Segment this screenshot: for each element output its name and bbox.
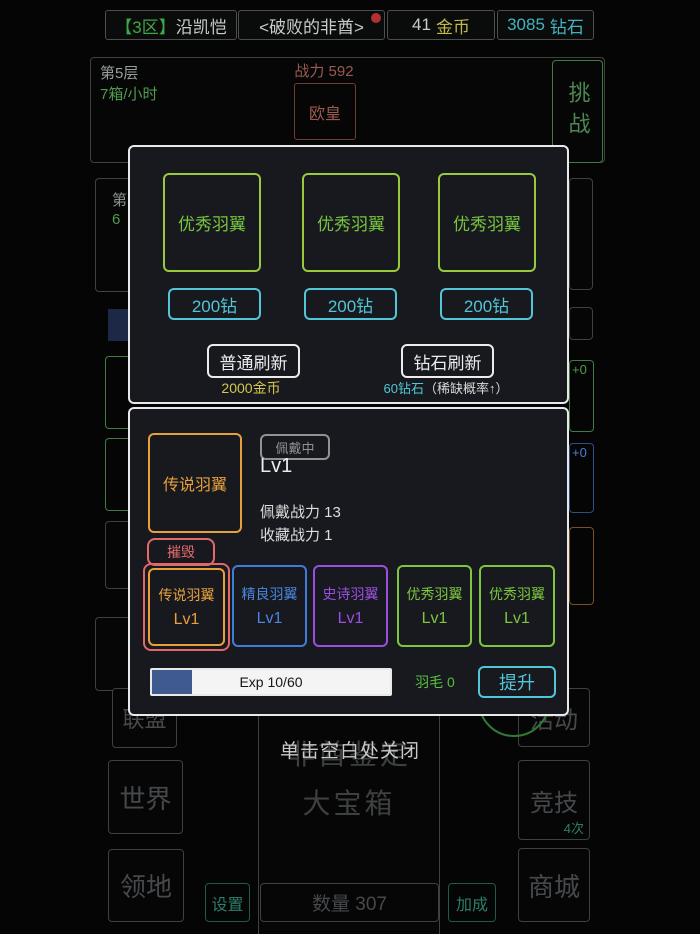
destroy-button[interactable]: 摧毁 bbox=[147, 538, 215, 566]
guild-title-button[interactable]: <破败的非酋> bbox=[238, 10, 385, 40]
slot-blue-plus-label: +0 bbox=[572, 445, 587, 460]
challenge-label: 挑战 bbox=[562, 81, 594, 143]
game-screen: 【3区】 沿凯恺 <破败的非酋> 41 金币 3085 钻石 第5层 7箱/小时… bbox=[0, 0, 700, 934]
shop-item-name: 优秀羽翼 bbox=[453, 210, 521, 235]
inventory-wing-card[interactable]: 优秀羽翼 Lv1 bbox=[479, 565, 555, 647]
menu-shop-button[interactable]: 商城 bbox=[518, 848, 590, 922]
settings-button[interactable]: 设置 bbox=[205, 883, 250, 922]
equipped-badge-label: 佩戴中 bbox=[275, 438, 314, 457]
diamond-unit-label: 钻石 bbox=[550, 13, 584, 38]
right-slot-orange bbox=[569, 527, 594, 605]
exp-label: Exp 10/60 bbox=[152, 670, 390, 694]
server-zone-label: 【3区】 bbox=[115, 13, 175, 38]
wing-level: Lv1 bbox=[338, 610, 364, 628]
inventory-wing-card[interactable]: 传说羽翼 Lv1 bbox=[148, 568, 225, 646]
gold-counter: 41 金币 bbox=[387, 10, 495, 40]
normal-refresh-button[interactable]: 普通刷新 bbox=[207, 344, 300, 378]
upgrade-label: 提升 bbox=[499, 669, 535, 695]
slot-green-plus-label: +0 bbox=[572, 362, 587, 377]
price-label: 200钻 bbox=[464, 292, 509, 317]
shop-item-card[interactable]: 优秀羽翼 bbox=[438, 173, 536, 272]
gold-unit-label: 金币 bbox=[436, 13, 470, 38]
diamond-refresh-label: 钻石刷新 bbox=[414, 349, 482, 374]
chest-rate-label: 7箱/小时 bbox=[100, 83, 158, 104]
buy-button[interactable]: 200钻 bbox=[304, 288, 397, 320]
bonus-label: 加成 bbox=[456, 891, 488, 915]
normal-refresh-cost-label: 2000金币 bbox=[163, 378, 339, 398]
arena-count-badge: 4次 bbox=[548, 818, 584, 837]
selected-wing-card[interactable]: 传说羽翼 bbox=[148, 433, 242, 533]
collection-power-label: 收藏战力 1 bbox=[260, 524, 333, 545]
settings-label: 设置 bbox=[211, 891, 243, 915]
wing-name: 传说羽翼 bbox=[159, 585, 215, 605]
wear-power-label: 佩戴战力 13 bbox=[260, 501, 341, 522]
feather-count-label: 羽毛 0 bbox=[400, 672, 470, 692]
world-label: 世界 bbox=[119, 779, 171, 816]
enemy-card[interactable]: 欧皇 bbox=[294, 83, 356, 140]
bonus-button[interactable]: 加成 bbox=[448, 883, 496, 922]
right-slot-gray-1 bbox=[569, 178, 593, 290]
buy-button[interactable]: 200钻 bbox=[168, 288, 261, 320]
wing-level: Lv1 bbox=[422, 610, 448, 628]
wing-name: 史诗羽翼 bbox=[323, 584, 379, 604]
diamond-value: 3085 bbox=[507, 15, 545, 35]
wing-name: 优秀羽翼 bbox=[407, 584, 463, 604]
inventory-wing-card[interactable]: 优秀羽翼 Lv1 bbox=[397, 565, 472, 647]
menu-world-button[interactable]: 世界 bbox=[108, 760, 183, 834]
wing-name: 精良羽翼 bbox=[242, 584, 298, 604]
wing-level: Lv1 bbox=[257, 610, 283, 628]
shop-label: 商城 bbox=[528, 867, 580, 904]
normal-refresh-label: 普通刷新 bbox=[220, 349, 288, 374]
menu-territory-button[interactable]: 领地 bbox=[108, 849, 184, 922]
diamond-refresh-cost-note: （稀缺概率↑） bbox=[424, 378, 509, 397]
price-label: 200钻 bbox=[328, 292, 373, 317]
gold-value: 41 bbox=[412, 15, 431, 35]
wing-level-label: Lv1 bbox=[260, 455, 292, 478]
inventory-wing-card[interactable]: 史诗羽翼 Lv1 bbox=[313, 565, 388, 647]
diamond-refresh-button[interactable]: 钻石刷新 bbox=[401, 344, 494, 378]
chest-subtitle-label: 大宝箱 bbox=[302, 782, 395, 822]
floor-label: 第5层 bbox=[100, 62, 138, 83]
price-label: 200钻 bbox=[192, 292, 237, 317]
arena-label: 竞技 bbox=[530, 783, 578, 818]
shop-item-card[interactable]: 优秀羽翼 bbox=[302, 173, 400, 272]
wing-name: 优秀羽翼 bbox=[489, 584, 545, 604]
floor2-number-label: 6 bbox=[112, 211, 120, 228]
chest-count-bar: 数量 307 bbox=[260, 883, 439, 922]
diamond-counter: 3085 钻石 bbox=[497, 10, 594, 40]
close-hint-label: 单击空白处关闭 bbox=[248, 736, 452, 763]
destroy-label: 摧毁 bbox=[167, 542, 195, 562]
notification-dot-icon bbox=[371, 13, 381, 23]
player-name-label: 沿凯恺 bbox=[176, 13, 227, 38]
enemy-name-label: 欧皇 bbox=[309, 100, 341, 124]
diamond-refresh-cost: 60钻石 （稀缺概率↑） bbox=[341, 378, 551, 397]
buy-button[interactable]: 200钻 bbox=[440, 288, 533, 320]
inventory-wing-card[interactable]: 精良羽翼 Lv1 bbox=[232, 565, 307, 647]
guild-title-label: <破败的非酋> bbox=[259, 13, 364, 38]
server-player-badge: 【3区】 沿凯恺 bbox=[105, 10, 237, 40]
exp-bar: Exp 10/60 bbox=[150, 668, 392, 696]
enemy-power-label: 战力 592 bbox=[280, 60, 368, 81]
shop-item-name: 优秀羽翼 bbox=[317, 210, 385, 235]
selected-wing-name: 传说羽翼 bbox=[163, 471, 227, 495]
shop-item-card[interactable]: 优秀羽翼 bbox=[163, 173, 261, 272]
upgrade-button[interactable]: 提升 bbox=[478, 666, 556, 698]
territory-label: 领地 bbox=[120, 867, 172, 904]
wing-level: Lv1 bbox=[174, 611, 200, 629]
shop-item-name: 优秀羽翼 bbox=[178, 210, 246, 235]
right-slot-gray-2 bbox=[569, 307, 593, 340]
wing-level: Lv1 bbox=[504, 610, 530, 628]
diamond-refresh-cost-value: 60钻石 bbox=[384, 378, 424, 397]
floor2-prefix-label: 第 bbox=[112, 189, 127, 210]
chest-count-label: 数量 307 bbox=[312, 889, 387, 916]
